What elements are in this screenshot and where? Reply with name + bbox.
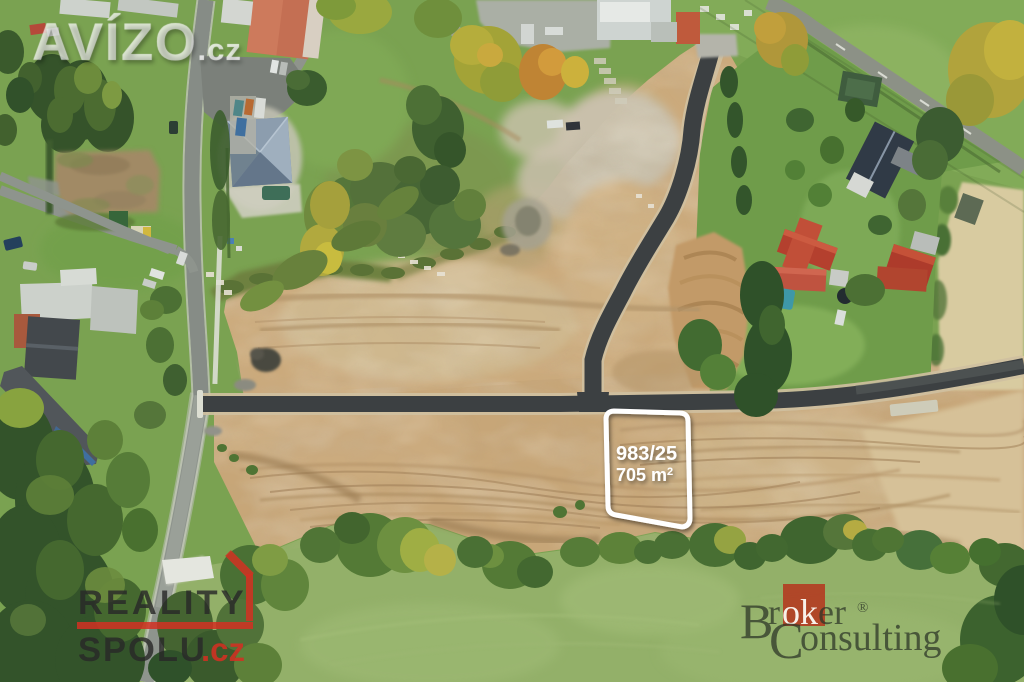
svg-text:®: ® bbox=[857, 600, 868, 616]
svg-text:onsulting: onsulting bbox=[800, 617, 941, 659]
svg-text:C: C bbox=[769, 613, 804, 670]
